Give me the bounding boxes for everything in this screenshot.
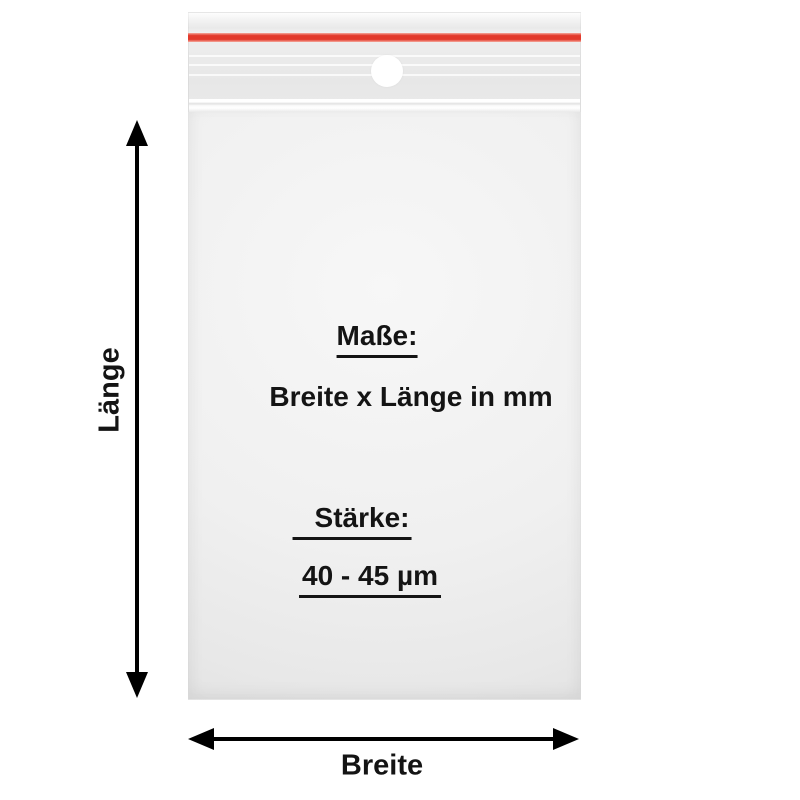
arrow-right-icon [553,728,579,750]
bag-body: Maße: Breite x Länge in mm Stärke: 40 - … [188,112,581,700]
length-dimension-arrow [126,120,148,698]
thickness-title: Stärke: [293,504,412,540]
length-label: Länge [96,347,125,432]
arrow-shaft [204,737,563,741]
thickness-title-text: Stärke: [293,504,412,540]
width-dimension-arrow [188,728,579,750]
thickness-value: 40 - 45 µm [299,562,441,598]
width-label: Breite [341,752,423,781]
hang-hole [371,55,403,87]
arrow-down-icon [126,672,148,698]
product-image: Maße: Breite x Länge in mm Stärke: 40 - … [0,0,800,800]
red-seal-line [188,33,581,42]
dimensions-title: Maße: [337,322,418,358]
thickness-value-text: 40 - 45 µm [299,562,441,598]
dimensions-value: Breite x Länge in mm [269,383,552,411]
dimensions-title-text: Maße: [337,322,418,358]
bag-top-flap [188,12,581,33]
zip-opening-highlight [189,99,580,112]
zip-bag: Maße: Breite x Länge in mm Stärke: 40 - … [188,12,581,700]
arrow-shaft [135,136,139,682]
